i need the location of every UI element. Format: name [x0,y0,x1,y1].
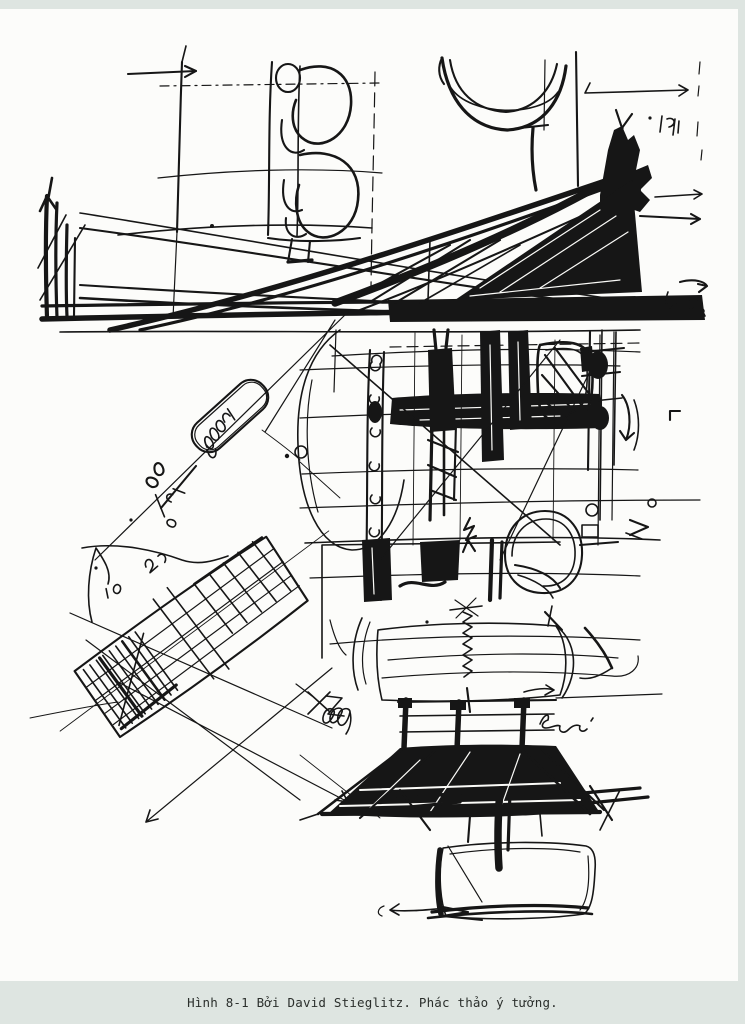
sketch-spring-box [296,598,662,734]
sketch-central-mass [295,330,700,658]
scanned-book-page: Hình 8-1 Bởi David Stieglitz. Phác thảo … [0,0,745,1024]
figure-caption-band: Hình 8-1 Bởi David Stieglitz. Phác thảo … [0,981,745,1024]
figure-caption: Hình 8-1 Bởi David Stieglitz. Phác thảo … [187,995,558,1010]
sketch-plinth [300,698,604,842]
sketch-catenary-roof [439,52,702,190]
concept-sketch-figure [0,0,745,981]
sketch-tilted-building [29,491,380,822]
sketch-capsule-note [185,373,340,498]
